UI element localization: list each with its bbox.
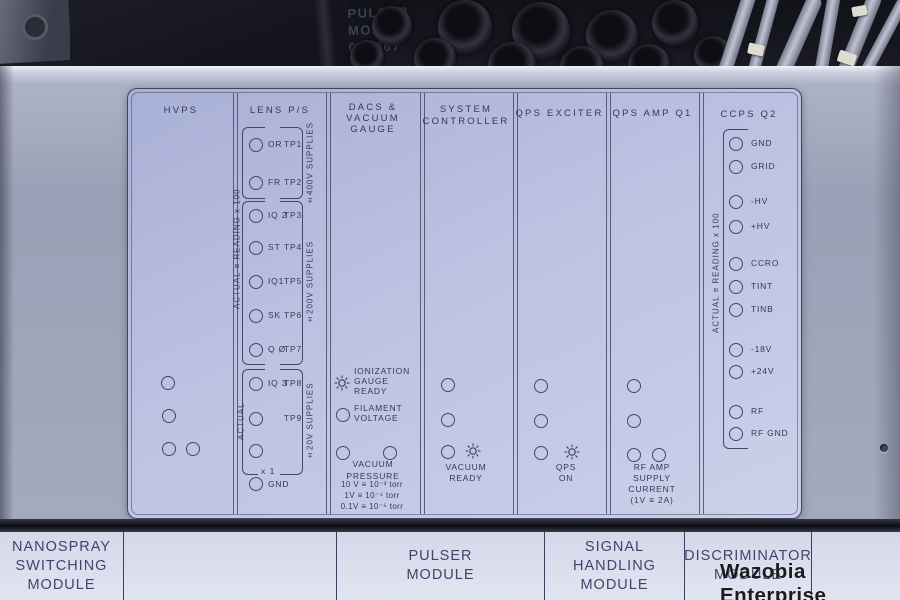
x1-multiplier-label: x 1	[258, 466, 278, 476]
column-divider	[606, 93, 611, 514]
test-point	[186, 442, 200, 456]
vacuum-ready-label: VACUUM READY	[422, 462, 510, 484]
test-point	[729, 137, 743, 151]
test-point	[729, 160, 743, 174]
tp-number: TP9	[278, 413, 302, 423]
hvps-title: HVPS	[130, 105, 232, 117]
bnc-connector	[350, 40, 384, 68]
module-cell	[124, 532, 337, 600]
test-point	[729, 365, 743, 379]
test-point	[249, 477, 263, 491]
pressure-scale-line: 1V ≡ 10⁻⁴ torr	[324, 491, 420, 500]
column-divider	[513, 93, 518, 514]
chassis-gap	[0, 519, 900, 532]
test-point	[249, 241, 263, 255]
pulser-module-label: PULSER MODULE	[406, 547, 474, 585]
cable-tie	[747, 42, 765, 56]
test-point	[336, 446, 350, 460]
column-divider	[326, 93, 331, 514]
ccps-actual-reading-label: ACTUAL ≡ READING x 100	[710, 199, 722, 347]
signal-handling-module-label: SIGNAL HANDLING MODULE	[573, 538, 656, 595]
ccps-point-label: +HV	[751, 221, 770, 231]
chassis-photo-strip: PULSER MODULE 005967	[0, 0, 900, 68]
test-point	[534, 414, 548, 428]
group-bracket-right	[280, 127, 303, 199]
ccps-point-label: GND	[751, 138, 772, 148]
tp-number: TP8	[278, 378, 302, 388]
bolt-head	[22, 14, 48, 40]
tp-number: TP4	[278, 242, 302, 252]
dacs-title: DACS & VACUUM GAUGE	[326, 102, 420, 135]
column-divider	[699, 93, 704, 514]
cable	[768, 0, 823, 68]
qps-on-led-icon	[564, 444, 580, 460]
test-point	[383, 446, 397, 460]
nanospray-switching-module-label: NANOSPRAY SWITCHING MODULE	[12, 538, 111, 595]
vacuum-pressure-label: VACUUM PRESSURE	[326, 459, 420, 482]
column-divider	[420, 93, 425, 514]
ccps-title: CCPS Q2	[700, 109, 798, 121]
test-point	[162, 442, 176, 456]
test-point	[729, 220, 743, 234]
qps-exciter-title: QPS EXCITER	[514, 108, 605, 120]
qps-amp-title: QPS AMP Q1	[607, 108, 698, 120]
tp-number: TP1	[278, 139, 302, 149]
screenshot-root: PULSER MODULE 005967 HVPS	[0, 0, 900, 600]
test-point	[249, 412, 263, 426]
supplies-400v-label: ±400V SUPPLIES	[304, 125, 316, 201]
test-point	[249, 444, 263, 458]
gnd-label: GND	[268, 479, 289, 489]
pressure-scale-line: 10 V ≡ 10⁻³ torr	[324, 480, 420, 489]
test-point	[441, 378, 455, 392]
ccps-point-label: TINT	[751, 281, 773, 291]
tp-number: TP5	[278, 276, 302, 286]
ccps-point-label: RF	[751, 406, 764, 416]
monitor-panel: HVPS LENS P/S ACTUAL ≡ READING x 100 ±40…	[127, 88, 802, 519]
test-point	[249, 176, 263, 190]
test-point	[249, 209, 263, 223]
qps-on-label: QPS ON	[526, 462, 606, 484]
test-point	[729, 427, 743, 441]
test-point	[162, 409, 176, 423]
test-point	[336, 408, 350, 422]
test-point	[729, 343, 743, 357]
filament-voltage-label: FILAMENT VOLTAGE	[354, 403, 402, 423]
tp-number: TP7	[278, 344, 302, 354]
test-point	[534, 446, 548, 460]
module-cell: PULSER MODULE	[337, 532, 545, 600]
test-point	[729, 405, 743, 419]
test-point	[729, 280, 743, 294]
test-point	[534, 379, 548, 393]
pressure-scale-line: 0.1V ≡ 10⁻⁵ torr	[324, 502, 420, 511]
ionization-gauge-ready-label: IONIZATION GAUGE READY	[354, 366, 410, 396]
screw-hole	[880, 444, 888, 452]
lens-actual-label: ACTUAL	[235, 385, 247, 457]
module-cell: SIGNAL HANDLING MODULE	[545, 532, 685, 600]
tp-number: TP3	[278, 210, 302, 220]
ccps-point-label: +24V	[751, 366, 774, 376]
test-point	[627, 414, 641, 428]
test-point	[249, 309, 263, 323]
ccps-point-label: RF GND	[751, 428, 788, 438]
tp-number: TP6	[278, 310, 302, 320]
ionization-gauge-led-icon	[334, 375, 350, 391]
supplies-200v-label: ±200V SUPPLIES	[304, 217, 316, 347]
ccps-point-label: CCRO	[751, 258, 779, 268]
test-point	[729, 257, 743, 271]
bnc-connector	[372, 6, 412, 46]
lens-title: LENS P/S	[235, 105, 325, 117]
test-point	[249, 275, 263, 289]
test-point	[627, 379, 641, 393]
system-controller-title: SYSTEM CONTROLLER	[420, 104, 512, 128]
bnc-connector	[652, 0, 698, 46]
supplies-20v-label: ±20V SUPPLIES	[304, 373, 316, 469]
rf-amp-supply-current-label: RF AMP SUPPLY CURRENT (1V ≡ 2A)	[602, 462, 702, 506]
ccps-point-label: GRID	[751, 161, 775, 171]
test-point	[627, 448, 641, 462]
module-cell: NANOSPRAY SWITCHING MODULE	[0, 532, 124, 600]
ccps-point-label: TINB	[751, 304, 774, 314]
tp-number: TP2	[278, 177, 302, 187]
test-point	[729, 303, 743, 317]
vacuum-ready-led-icon	[465, 443, 481, 459]
test-point	[161, 376, 175, 390]
test-point	[441, 413, 455, 427]
ccps-point-label: -HV	[751, 196, 768, 206]
watermark-text: Wazobia Enterprise	[720, 560, 900, 600]
ccps-point-label: -18V	[751, 344, 772, 354]
test-point	[729, 195, 743, 209]
pulser-module-faceplate	[70, 0, 350, 68]
test-point	[441, 445, 455, 459]
test-point	[249, 343, 263, 357]
test-point	[249, 377, 263, 391]
test-point	[652, 448, 666, 462]
test-point	[249, 138, 263, 152]
